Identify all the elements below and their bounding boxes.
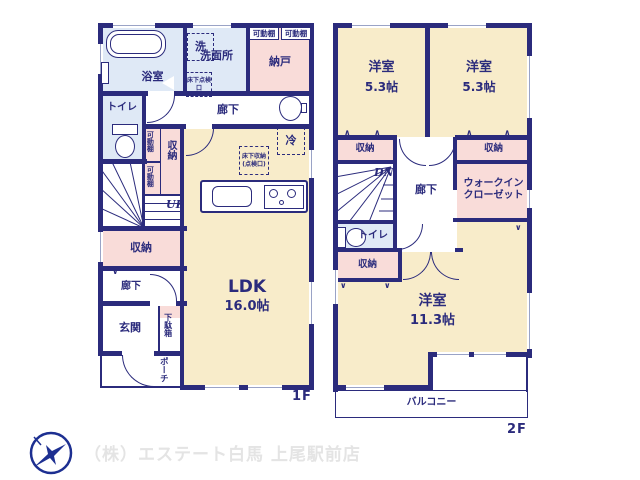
movable-shelf-label: 可動棚 bbox=[285, 29, 308, 38]
window-marker bbox=[346, 385, 384, 390]
wall-segment bbox=[144, 161, 160, 163]
balcony-rail bbox=[526, 356, 528, 392]
entrance-label: 玄関 bbox=[100, 321, 160, 334]
door-gap bbox=[150, 301, 176, 306]
wall-segment bbox=[333, 160, 395, 164]
bath-counter bbox=[101, 62, 109, 84]
storage-1f-label: 収納 bbox=[100, 241, 182, 254]
toilet-1f-label: トイレ bbox=[100, 102, 144, 114]
storeroom-label: 納戸 bbox=[248, 55, 312, 68]
ldk-size-label: 16.0帖 bbox=[182, 299, 312, 315]
western2-name-label: 洋室 bbox=[428, 60, 530, 76]
hallway2-1f-label: 廊下 bbox=[100, 281, 162, 293]
window-marker bbox=[437, 352, 469, 357]
shoe-cabinet-label: 下駄箱 bbox=[163, 313, 173, 337]
western3-size-label: 11.3帖 bbox=[335, 313, 530, 329]
hallway-2f-label: 廊下 bbox=[395, 183, 457, 196]
bathtub-inner bbox=[110, 34, 162, 54]
bathtub bbox=[106, 30, 166, 58]
closet-strip bbox=[160, 128, 182, 196]
hallway-1f-label: 廊下 bbox=[180, 103, 276, 116]
closet-2f-right-label: 収納 bbox=[457, 143, 530, 154]
window-marker bbox=[474, 352, 506, 357]
porch-label: ポーチ bbox=[158, 357, 168, 383]
company-logo bbox=[26, 427, 76, 477]
walk-in-closet-label: ウォークインクローゼット bbox=[459, 178, 528, 202]
bathroom-label: 浴室 bbox=[120, 70, 185, 83]
wall-segment bbox=[98, 159, 147, 164]
stove-burner bbox=[287, 189, 296, 198]
toilet-2f-label: トイレ bbox=[352, 230, 394, 242]
wall-segment bbox=[333, 135, 397, 140]
window-marker bbox=[113, 23, 155, 28]
floor1-tag: 1F bbox=[292, 389, 312, 404]
underfloor-storage: 床下収納(点検口) bbox=[239, 146, 269, 175]
window-marker bbox=[248, 385, 282, 390]
company-name: （株）エステート白馬 上尾駅前店 bbox=[84, 440, 361, 465]
stove-burner-small bbox=[279, 200, 284, 205]
underfloor-hatch-label: 床下点検口 bbox=[187, 77, 211, 92]
movable-shelf-label: 可動棚 bbox=[253, 29, 276, 38]
closet-2f-bottom-label: 収納 bbox=[335, 259, 400, 270]
window-marker bbox=[448, 23, 486, 28]
window-marker bbox=[309, 150, 314, 178]
pegasus-bird-icon bbox=[26, 427, 76, 477]
wall-segment bbox=[455, 160, 532, 164]
balcony-notch bbox=[430, 356, 530, 390]
window-marker bbox=[352, 23, 390, 28]
floor2-tag: 2F bbox=[507, 422, 527, 437]
wall-segment bbox=[333, 23, 338, 392]
toilet-tank-2f bbox=[337, 227, 346, 248]
underfloor-storage-label: 床下収納(点検口) bbox=[240, 153, 268, 168]
movable-shelf-box: 可動棚 bbox=[281, 27, 311, 40]
wall-segment bbox=[309, 23, 314, 390]
window-marker bbox=[193, 23, 231, 28]
western3-name-label: 洋室 bbox=[335, 293, 530, 310]
toilet-bowl-1f bbox=[115, 135, 135, 158]
wall-segment bbox=[333, 248, 402, 252]
balcony-label: バルコニー bbox=[335, 397, 528, 409]
toilet-tank-1f bbox=[112, 124, 138, 135]
stove-burner bbox=[269, 189, 278, 198]
movable-shelf-box: 可動棚 bbox=[249, 27, 279, 40]
stairs-winder-1f bbox=[100, 162, 144, 228]
western2-size-label: 5.3帖 bbox=[428, 80, 530, 94]
wall-segment bbox=[180, 124, 184, 390]
fridge-label: 冷 bbox=[286, 134, 297, 148]
closet-vertical-label: 収納 bbox=[164, 140, 176, 160]
kitchen-sink bbox=[212, 186, 252, 207]
wall-segment bbox=[144, 194, 182, 196]
window-marker bbox=[205, 385, 239, 390]
closet-2f-left-label: 収納 bbox=[335, 143, 395, 154]
basin-faucet bbox=[301, 103, 307, 113]
movable-shelf-vertical-label: 可動棚 bbox=[146, 166, 154, 187]
underfloor-hatch: 床下点検口 bbox=[186, 72, 212, 97]
western1-name-label: 洋室 bbox=[335, 60, 428, 76]
stairs-down-label: DN bbox=[374, 166, 394, 179]
wall-segment bbox=[453, 218, 532, 222]
washroom-label: 洗面所 bbox=[185, 49, 248, 62]
wall-segment bbox=[428, 352, 433, 390]
ldk-name-label: LDK bbox=[182, 277, 312, 297]
wall-segment bbox=[160, 128, 161, 196]
fridge-space: 冷 bbox=[277, 127, 305, 155]
wall-segment bbox=[333, 220, 395, 224]
movable-shelf-vertical-label: 可動棚 bbox=[146, 131, 154, 152]
stairs-up-label: UP bbox=[166, 198, 184, 211]
floor-plan-page: 洗 床下点検口 冷 床下収納(点検口) 可動棚 可動棚 浴室 洗面所 納戸 廊下… bbox=[0, 0, 640, 480]
western1-size-label: 5.3帖 bbox=[335, 80, 428, 94]
